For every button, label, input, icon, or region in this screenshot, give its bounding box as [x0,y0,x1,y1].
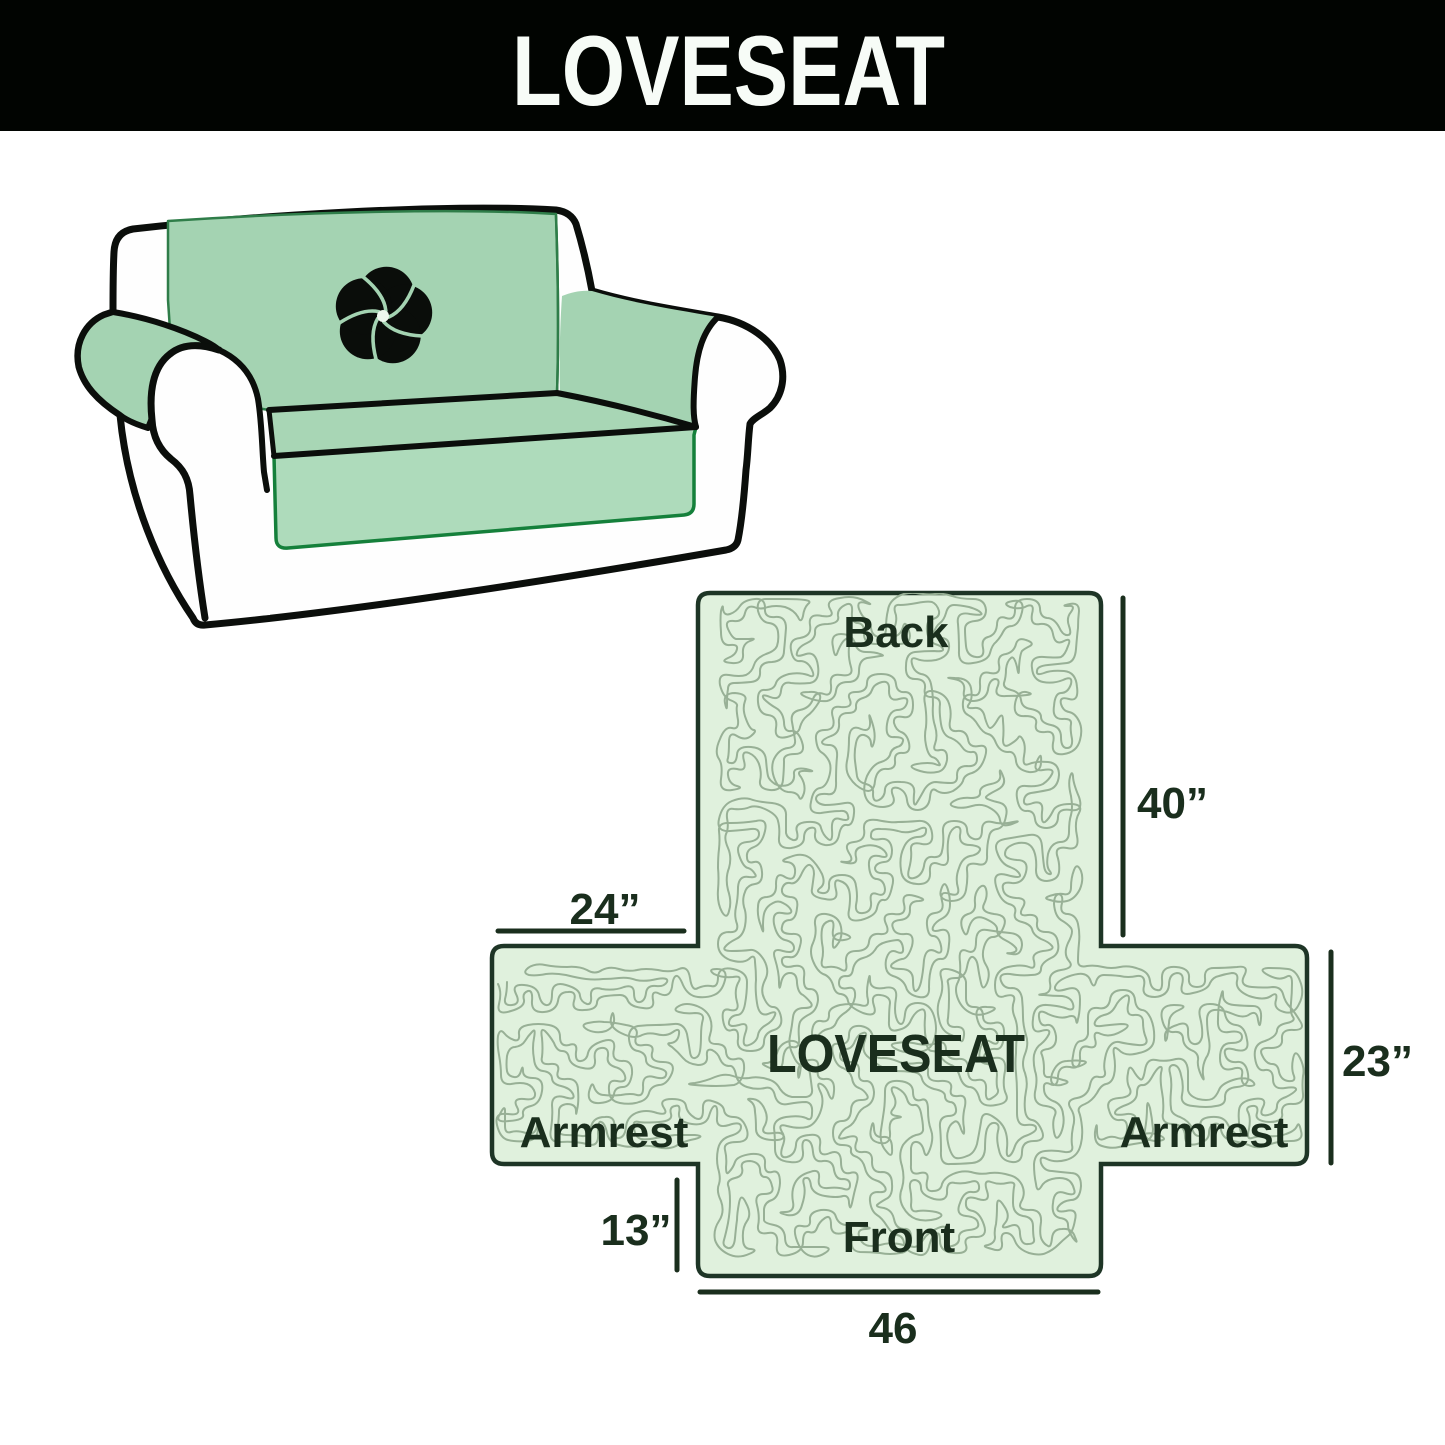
svg-text:23”: 23” [1342,1037,1413,1086]
svg-text:40”: 40” [1137,779,1208,828]
svg-text:46: 46 [869,1304,918,1353]
svg-text:Back: Back [843,608,949,657]
svg-text:24”: 24” [570,885,641,934]
svg-text:Front: Front [843,1213,956,1262]
svg-text:Armrest: Armrest [520,1108,689,1157]
svg-text:13”: 13” [601,1206,672,1255]
svg-text:LOVESEAT: LOVESEAT [512,15,945,126]
svg-text:LOVESEAT: LOVESEAT [767,1024,1025,1084]
svg-text:Armrest: Armrest [1120,1108,1289,1157]
